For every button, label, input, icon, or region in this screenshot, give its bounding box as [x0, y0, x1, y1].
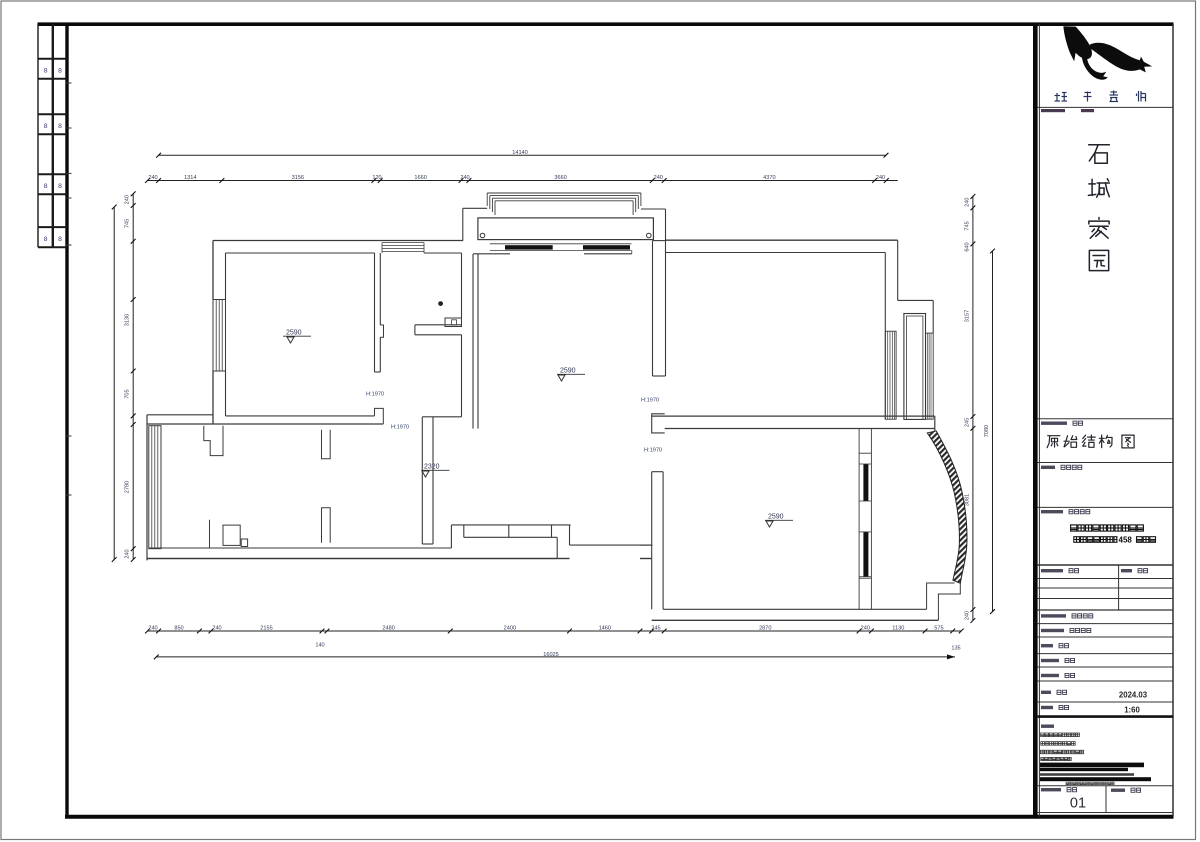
svg-text:14140: 14140 — [512, 150, 528, 156]
svg-text:2870: 2870 — [759, 625, 771, 631]
svg-text:240: 240 — [125, 195, 131, 204]
svg-text:1460: 1460 — [599, 625, 611, 631]
svg-text:8: 8 — [58, 183, 62, 190]
svg-text:1130: 1130 — [892, 625, 904, 631]
svg-text:8: 8 — [58, 68, 62, 75]
svg-text:3156: 3156 — [292, 175, 304, 181]
svg-text:8: 8 — [44, 68, 48, 75]
svg-text:2400: 2400 — [504, 625, 516, 631]
svg-text:2590: 2590 — [286, 330, 302, 337]
svg-text:240: 240 — [148, 625, 157, 631]
svg-text:640: 640 — [964, 242, 970, 251]
svg-text:3081: 3081 — [964, 494, 970, 506]
svg-text:240: 240 — [212, 625, 221, 631]
svg-text:H:1970: H:1970 — [366, 392, 384, 398]
svg-text:135: 135 — [951, 646, 960, 652]
svg-text:1314: 1314 — [184, 175, 196, 181]
svg-text:H:1970: H:1970 — [644, 448, 662, 454]
svg-text:575: 575 — [934, 625, 943, 631]
svg-text:240: 240 — [876, 175, 885, 181]
svg-text:8: 8 — [44, 123, 48, 130]
svg-text:705: 705 — [125, 389, 131, 398]
svg-text:8: 8 — [58, 236, 62, 243]
svg-text:240: 240 — [964, 198, 970, 207]
svg-text:120: 120 — [372, 175, 381, 181]
svg-text:01: 01 — [1070, 796, 1086, 812]
svg-text:850: 850 — [174, 625, 183, 631]
svg-text:3130: 3130 — [125, 314, 131, 326]
svg-text:2480: 2480 — [382, 625, 394, 631]
svg-text:2780: 2780 — [125, 481, 131, 493]
svg-text:245: 245 — [964, 418, 970, 427]
svg-text:240: 240 — [861, 625, 870, 631]
svg-text:H:1970: H:1970 — [641, 398, 659, 404]
svg-text:240: 240 — [654, 175, 663, 181]
svg-text:458: 458 — [1119, 535, 1133, 544]
svg-text:8: 8 — [44, 183, 48, 190]
svg-text:2320: 2320 — [424, 464, 440, 471]
svg-text:140: 140 — [315, 643, 324, 649]
svg-text:8: 8 — [44, 236, 48, 243]
svg-text:240: 240 — [460, 175, 469, 181]
svg-text:16025: 16025 — [543, 652, 559, 658]
svg-text:745: 745 — [964, 221, 970, 230]
svg-text:1:60: 1:60 — [1124, 705, 1140, 714]
svg-text:745: 745 — [125, 219, 131, 228]
svg-text:8: 8 — [58, 123, 62, 130]
svg-text:240: 240 — [964, 611, 970, 620]
svg-text:H:1970: H:1970 — [391, 425, 409, 431]
svg-text:2155: 2155 — [260, 625, 272, 631]
svg-text:240: 240 — [125, 549, 131, 558]
svg-text:3660: 3660 — [554, 175, 566, 181]
svg-text:2024.03: 2024.03 — [1119, 691, 1148, 700]
svg-text:4370: 4370 — [763, 175, 775, 181]
svg-text:2590: 2590 — [768, 514, 784, 521]
svg-text:240: 240 — [148, 175, 157, 181]
svg-text:2590: 2590 — [560, 368, 576, 375]
svg-text:245: 245 — [651, 625, 660, 631]
svg-text:3157: 3157 — [964, 310, 970, 322]
svg-text:7080: 7080 — [984, 425, 990, 437]
svg-text:1660: 1660 — [414, 175, 426, 181]
